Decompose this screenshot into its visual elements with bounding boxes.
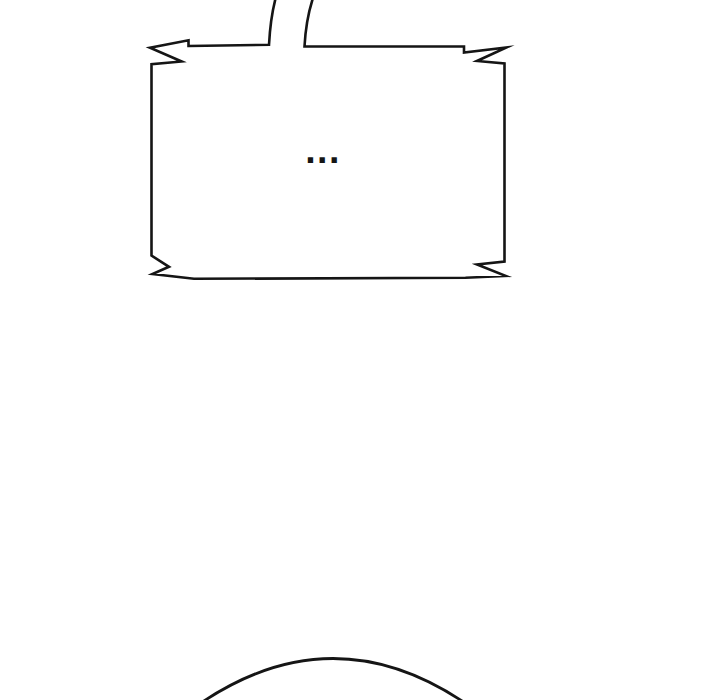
character-head-arc (198, 659, 468, 700)
comic-panel: ... (0, 0, 720, 700)
comic-art-layer: ... (0, 0, 720, 700)
speech-bubble-text: ... (305, 135, 341, 170)
